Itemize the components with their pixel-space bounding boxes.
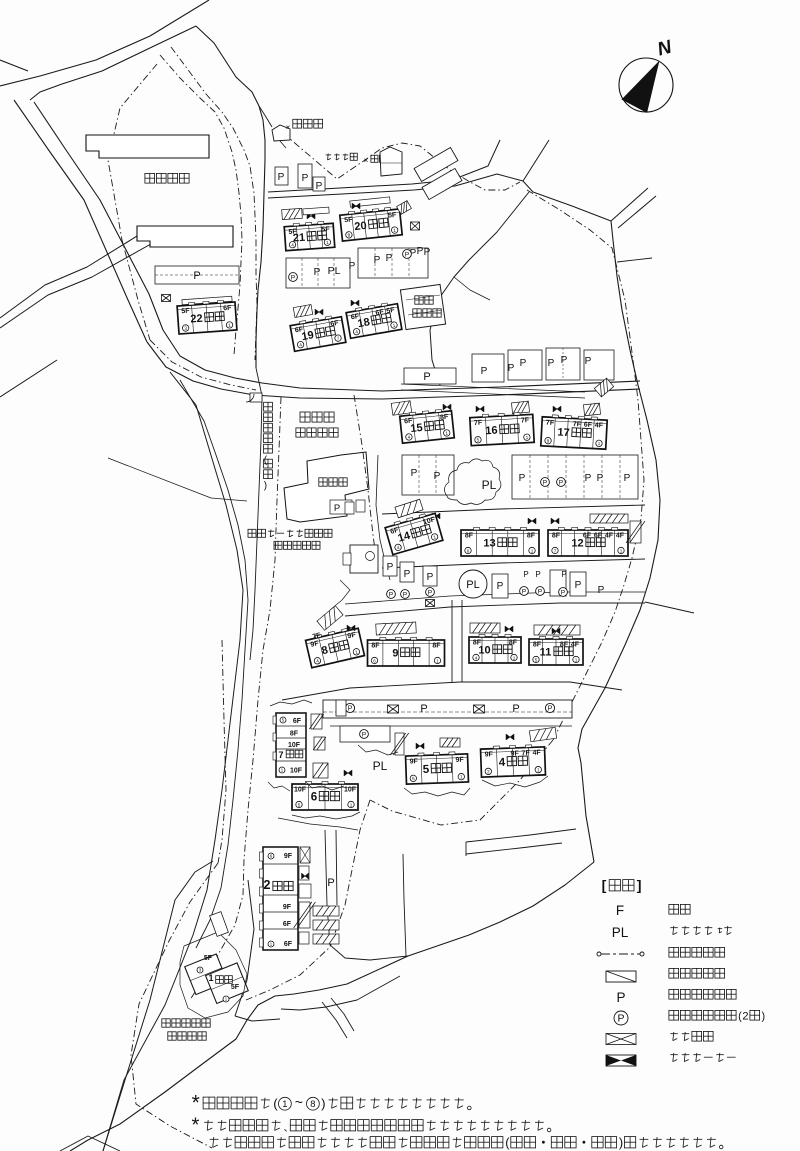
svg-text:P: P: [481, 366, 488, 377]
svg-text:5: 5: [535, 657, 538, 662]
svg-text:P: P: [585, 473, 592, 484]
svg-text:P: P: [362, 731, 367, 738]
svg-text:10F: 10F: [294, 787, 307, 794]
svg-text:10: 10: [478, 644, 490, 656]
svg-text:P: P: [561, 589, 566, 596]
svg-text:P: P: [585, 356, 592, 367]
svg-text:11: 11: [540, 646, 552, 658]
svg-text:4F: 4F: [616, 533, 625, 540]
svg-text:): ): [264, 480, 267, 491]
svg-text:(: (: [505, 1135, 510, 1150]
svg-text:P: P: [334, 503, 340, 514]
svg-text:P: P: [543, 479, 548, 486]
svg-text:2: 2: [264, 878, 271, 892]
svg-text:18: 18: [357, 316, 371, 330]
svg-text:1: 1: [513, 655, 516, 660]
svg-text:): ): [761, 1010, 765, 1022]
svg-text:1: 1: [350, 802, 353, 807]
svg-text:P: P: [424, 247, 431, 258]
svg-text:7F: 7F: [573, 421, 582, 428]
svg-text:P: P: [316, 181, 323, 192]
svg-text:20: 20: [354, 220, 367, 233]
svg-text:19: 19: [301, 329, 315, 343]
svg-text:10F: 10F: [290, 768, 303, 775]
svg-text:6: 6: [373, 658, 376, 663]
svg-text:(: (: [273, 1096, 278, 1111]
svg-text:P: P: [575, 580, 582, 591]
svg-text:P: P: [302, 173, 309, 184]
svg-text:8F: 8F: [290, 731, 299, 738]
svg-text:8F: 8F: [552, 533, 561, 540]
svg-text:6F: 6F: [284, 941, 293, 948]
svg-text:P: P: [512, 703, 519, 715]
svg-text:1: 1: [575, 657, 578, 662]
svg-text:P: P: [617, 1013, 624, 1025]
svg-text:9F: 9F: [485, 751, 494, 758]
svg-text:P: P: [417, 246, 424, 257]
svg-text:6: 6: [467, 548, 470, 553]
svg-text:P: P: [434, 471, 441, 482]
svg-text:PL: PL: [373, 759, 388, 773]
svg-text:P: P: [349, 261, 356, 272]
svg-text:P: P: [497, 581, 504, 592]
svg-text:8F: 8F: [432, 643, 441, 650]
svg-text:21: 21: [293, 232, 306, 245]
svg-text:12: 12: [571, 537, 583, 549]
svg-text:1: 1: [620, 548, 623, 553]
svg-text:P: P: [559, 479, 564, 486]
svg-text:8F: 8F: [465, 533, 474, 540]
svg-text:9F: 9F: [284, 853, 293, 860]
svg-text:): ): [619, 1135, 623, 1150]
svg-text:P: P: [561, 570, 566, 579]
svg-text:P: P: [411, 468, 418, 479]
svg-text:~: ~: [295, 1094, 303, 1110]
svg-text:P: P: [420, 703, 427, 715]
svg-text:PL: PL: [328, 265, 341, 277]
svg-text:7: 7: [554, 548, 557, 553]
svg-text:6F: 6F: [594, 533, 603, 540]
svg-text:7: 7: [278, 750, 283, 760]
svg-text:×: ×: [286, 123, 291, 132]
svg-text:9: 9: [392, 647, 398, 659]
svg-text:P: P: [348, 705, 353, 712]
svg-text:5F: 5F: [388, 212, 398, 220]
svg-text:4: 4: [475, 655, 478, 660]
svg-text:]: ]: [637, 878, 642, 894]
svg-text:P: P: [597, 473, 604, 484]
svg-text:10F: 10F: [288, 742, 301, 749]
svg-text:8F: 8F: [527, 533, 536, 540]
svg-text:5F: 5F: [344, 216, 354, 224]
svg-text:PL: PL: [482, 478, 497, 492]
svg-text:9F: 9F: [456, 757, 465, 764]
svg-text:P: P: [389, 591, 394, 598]
svg-text:×: ×: [364, 156, 369, 165]
svg-text:4F: 4F: [571, 642, 580, 649]
svg-text:6F: 6F: [223, 305, 232, 313]
svg-text:P: P: [386, 253, 393, 264]
svg-text:5F: 5F: [231, 984, 240, 991]
svg-text:P: P: [523, 570, 528, 579]
svg-text:6F: 6F: [584, 422, 593, 429]
svg-text:P: P: [428, 589, 433, 596]
svg-text:P: P: [624, 473, 631, 484]
svg-text:P: P: [538, 588, 543, 595]
svg-text:P: P: [427, 572, 434, 583]
svg-text:PL: PL: [466, 579, 479, 591]
svg-text:5F: 5F: [204, 955, 213, 962]
svg-text:P: P: [548, 358, 555, 369]
svg-text:P: P: [314, 267, 321, 278]
svg-text:1: 1: [282, 1099, 287, 1109]
svg-text:F: F: [616, 903, 624, 918]
svg-text:16: 16: [485, 425, 498, 438]
svg-text:P: P: [291, 274, 296, 281]
svg-text:8F: 8F: [371, 643, 380, 650]
svg-text:P: P: [561, 355, 568, 366]
svg-text:[: [: [602, 878, 607, 894]
svg-text:P: P: [535, 570, 540, 579]
svg-text:7F: 7F: [546, 420, 555, 427]
svg-text:P: P: [508, 363, 515, 374]
svg-text:P: P: [616, 990, 625, 1005]
svg-text:P: P: [374, 255, 381, 266]
svg-text:1: 1: [208, 973, 213, 983]
svg-text:P: P: [405, 251, 410, 258]
svg-text:P: P: [327, 877, 334, 889]
svg-text:9F: 9F: [283, 904, 292, 911]
svg-text:P: P: [278, 172, 285, 183]
svg-text:1: 1: [531, 548, 534, 553]
svg-text:10F: 10F: [344, 787, 357, 794]
svg-text:5: 5: [423, 764, 430, 776]
svg-text:2: 2: [742, 1011, 748, 1023]
svg-text:P: P: [519, 473, 526, 484]
svg-text:5: 5: [298, 802, 301, 807]
svg-text:*: *: [192, 1091, 200, 1114]
svg-text:P: P: [404, 569, 411, 580]
svg-text:4: 4: [499, 757, 506, 769]
svg-text:P: P: [598, 585, 605, 596]
svg-text:P: P: [423, 371, 430, 383]
svg-text:P: P: [193, 270, 200, 282]
svg-text:22: 22: [190, 313, 203, 326]
svg-text:4F: 4F: [595, 422, 604, 429]
svg-text:6F: 6F: [283, 921, 292, 928]
svg-text:): ): [321, 1096, 325, 1111]
svg-text:4F: 4F: [533, 750, 542, 757]
svg-text:*: *: [191, 1114, 199, 1136]
svg-text:P: P: [522, 588, 527, 595]
svg-text:15: 15: [410, 422, 423, 435]
svg-text:P: P: [548, 705, 553, 712]
svg-text:6F: 6F: [293, 718, 302, 725]
svg-text:4F: 4F: [605, 533, 614, 540]
svg-text:6: 6: [311, 792, 317, 804]
svg-text:1: 1: [436, 658, 439, 663]
svg-text:P: P: [387, 562, 394, 573]
svg-text:7F: 7F: [521, 417, 530, 424]
svg-text:17: 17: [557, 427, 570, 440]
svg-text:7F: 7F: [474, 419, 483, 426]
svg-text:8: 8: [310, 1099, 315, 1109]
svg-text:PL: PL: [612, 925, 629, 940]
svg-text:13: 13: [483, 537, 495, 549]
svg-text:P: P: [403, 591, 408, 598]
svg-text:9F: 9F: [410, 758, 419, 765]
svg-text:8F: 8F: [509, 640, 518, 647]
svg-text:P: P: [520, 358, 527, 369]
